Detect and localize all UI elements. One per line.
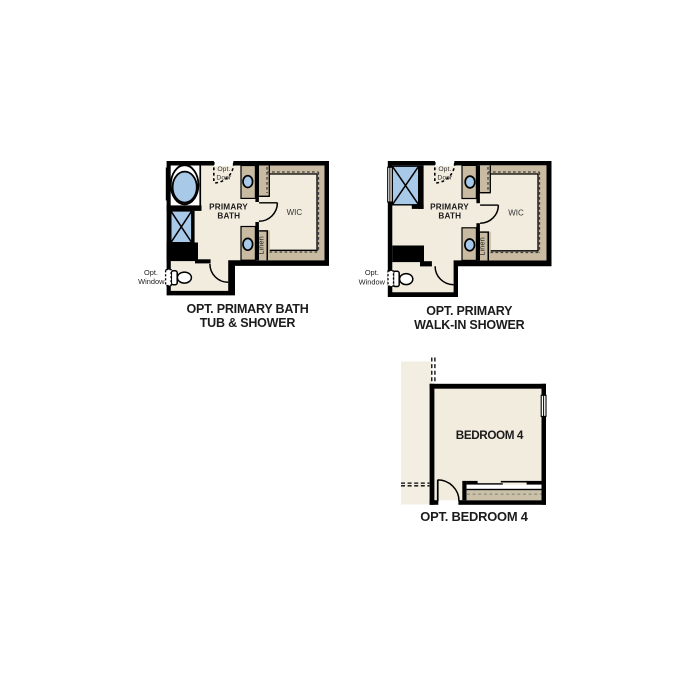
svg-text:WIC: WIC [287, 208, 303, 217]
svg-text:BATH: BATH [438, 212, 461, 221]
svg-text:TUB & SHOWER: TUB & SHOWER [200, 316, 296, 330]
svg-text:Linen: Linen [477, 237, 486, 255]
svg-text:Door: Door [216, 175, 231, 182]
svg-text:Opt.: Opt. [438, 166, 451, 173]
svg-text:Opt.: Opt. [217, 166, 230, 173]
svg-text:PRIMARY: PRIMARY [209, 203, 248, 212]
svg-text:Opt.: Opt. [144, 268, 158, 277]
svg-text:OPT. BEDROOM 4: OPT. BEDROOM 4 [420, 509, 529, 524]
svg-text:WALK-IN SHOWER: WALK-IN SHOWER [414, 318, 525, 332]
svg-text:BATH: BATH [217, 212, 240, 221]
svg-text:Opt.: Opt. [365, 268, 379, 277]
svg-text:Door: Door [437, 175, 452, 182]
svg-text:Linen: Linen [256, 236, 265, 254]
svg-text:OPT. PRIMARY: OPT. PRIMARY [426, 304, 513, 318]
svg-text:OPT. PRIMARY BATH: OPT. PRIMARY BATH [186, 302, 308, 316]
svg-text:WIC: WIC [508, 208, 524, 217]
svg-text:Window: Window [359, 277, 386, 286]
svg-text:Window: Window [138, 277, 165, 286]
svg-text:BEDROOM 4: BEDROOM 4 [456, 429, 524, 442]
svg-text:PRIMARY: PRIMARY [430, 203, 469, 212]
